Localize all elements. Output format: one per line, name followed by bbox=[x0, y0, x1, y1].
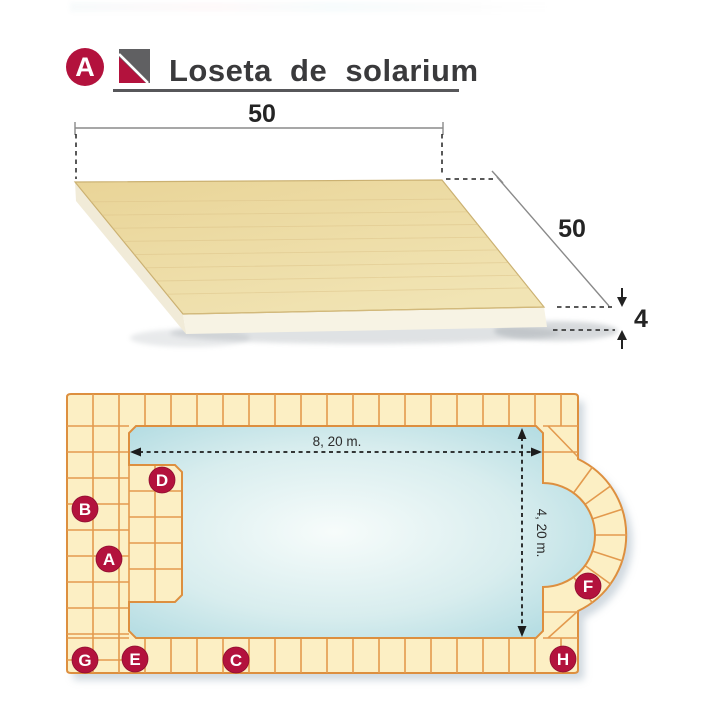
marker-letter: E bbox=[129, 650, 140, 669]
marker-badge-b: B bbox=[72, 496, 98, 522]
diagram-canvas: 50 50 4 8, 20 m. 4, 20 bbox=[0, 0, 720, 720]
pool-plan: 8, 20 m. 4, 20 m. A B C D E F bbox=[67, 394, 632, 680]
marker-badge-e: E bbox=[122, 646, 148, 672]
width-extension-dashes bbox=[76, 134, 442, 179]
thickness-arrow-down bbox=[617, 297, 627, 307]
tile-figure: 50 50 4 bbox=[75, 100, 648, 349]
length-value: 8, 20 m. bbox=[313, 434, 362, 449]
marker-letter: B bbox=[79, 500, 91, 519]
thickness-value: 4 bbox=[634, 305, 648, 333]
marker-letter: G bbox=[78, 651, 91, 670]
catalog-page: { "header": { "badge_letter": "A", "titl… bbox=[0, 0, 720, 720]
marker-letter: C bbox=[230, 651, 242, 670]
marker-badge-d: D bbox=[149, 467, 175, 493]
pool-width-value: 4, 20 m. bbox=[534, 509, 549, 558]
thickness-arrow-up bbox=[617, 330, 627, 340]
pool-water bbox=[129, 426, 595, 638]
depth-value: 50 bbox=[558, 215, 586, 243]
marker-badge-c: C bbox=[223, 647, 249, 673]
marker-letter: A bbox=[103, 550, 115, 569]
marker-badge-f: F bbox=[575, 573, 601, 599]
marker-letter: H bbox=[557, 650, 569, 669]
width-value: 50 bbox=[248, 100, 276, 128]
marker-letter: F bbox=[583, 577, 593, 596]
marker-letter: D bbox=[156, 471, 168, 490]
marker-badge-a: A bbox=[96, 546, 122, 572]
marker-badge-g: G bbox=[72, 647, 98, 673]
marker-badge-h: H bbox=[550, 646, 576, 672]
